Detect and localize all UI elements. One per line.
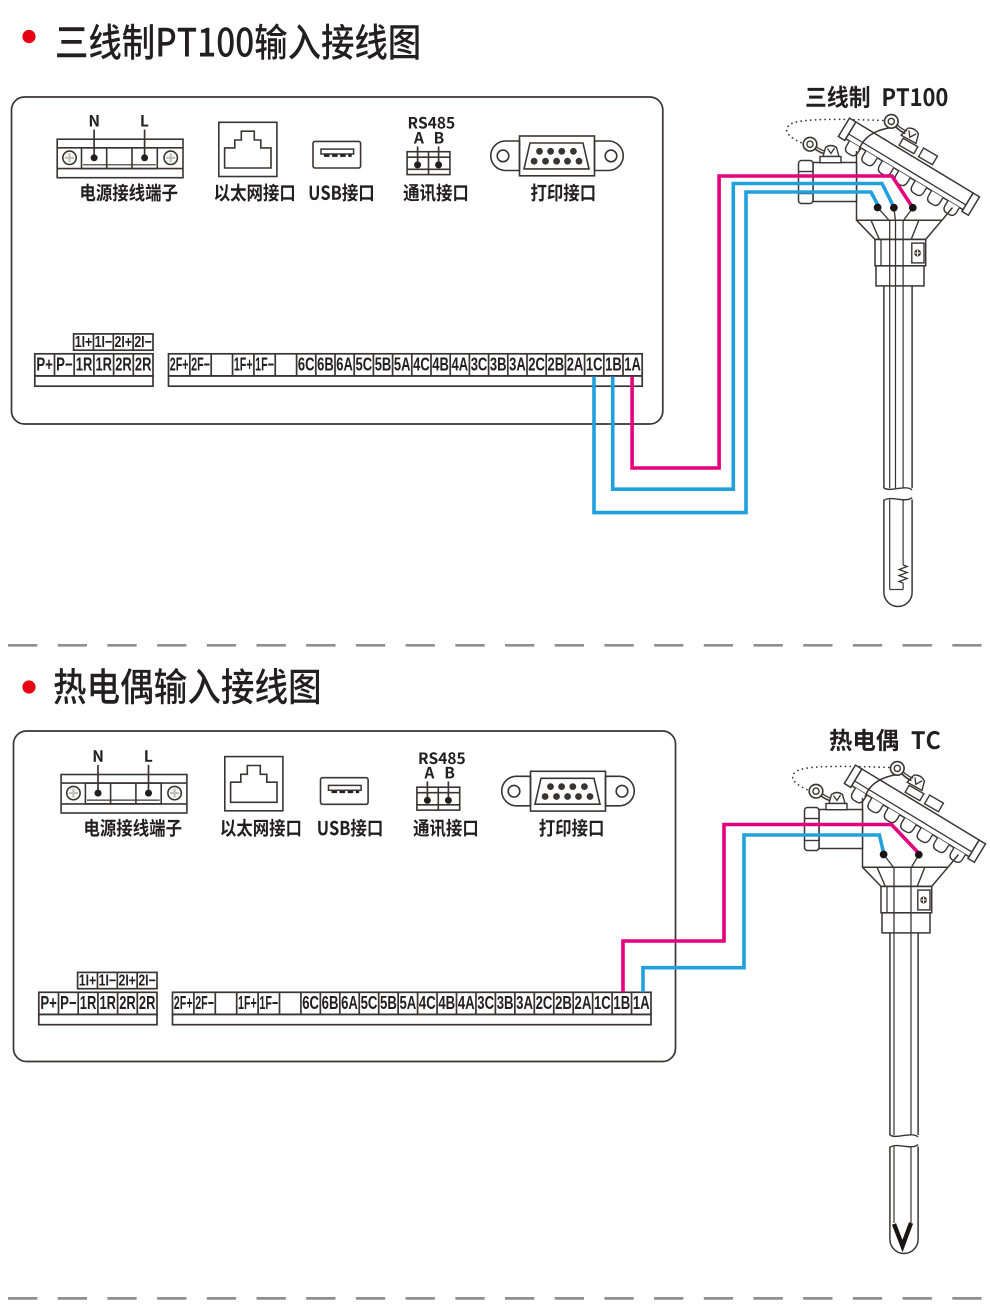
svg-text:4A: 4A	[458, 993, 475, 1013]
svg-text:1I−: 1I−	[95, 334, 113, 351]
svg-text:5A: 5A	[394, 355, 411, 375]
svg-text:2I−: 2I−	[138, 972, 156, 989]
svg-text:6B: 6B	[317, 355, 334, 375]
svg-text:1F−: 1F−	[255, 355, 274, 375]
svg-text:P+: P+	[40, 993, 57, 1013]
svg-text:1F+: 1F+	[238, 993, 257, 1013]
svg-text:1I−: 1I−	[99, 972, 117, 989]
svg-text:3A: 3A	[516, 993, 533, 1013]
svg-text:1C: 1C	[586, 355, 603, 375]
svg-text:1A: 1A	[624, 355, 641, 375]
svg-text:4B: 4B	[438, 993, 455, 1013]
svg-text:2A: 2A	[575, 993, 592, 1013]
svg-text:2C: 2C	[528, 355, 545, 375]
svg-text:2F+: 2F+	[170, 355, 189, 375]
svg-text:3C: 3C	[477, 993, 494, 1013]
svg-text:2R: 2R	[135, 355, 152, 375]
svg-text:1I+: 1I+	[79, 972, 97, 989]
svg-text:4A: 4A	[452, 355, 469, 375]
svg-text:1C: 1C	[594, 993, 611, 1013]
svg-text:3B: 3B	[497, 993, 514, 1013]
svg-text:1R: 1R	[96, 355, 113, 375]
svg-text:3B: 3B	[490, 355, 507, 375]
svg-text:5B: 5B	[380, 993, 397, 1013]
svg-text:1F−: 1F−	[259, 993, 278, 1013]
svg-text:2I+: 2I+	[114, 334, 132, 351]
svg-text:P−: P−	[56, 355, 73, 375]
svg-text:5A: 5A	[399, 993, 416, 1013]
svg-text:3A: 3A	[509, 355, 526, 375]
svg-text:2F−: 2F−	[195, 993, 214, 1013]
svg-text:2I+: 2I+	[118, 972, 136, 989]
svg-text:1A: 1A	[633, 993, 650, 1013]
svg-text:6B: 6B	[322, 993, 339, 1013]
svg-text:1F+: 1F+	[234, 355, 253, 375]
svg-text:3C: 3C	[471, 355, 488, 375]
svg-text:4C: 4C	[419, 993, 436, 1013]
svg-text:6C: 6C	[298, 355, 315, 375]
svg-text:5C: 5C	[361, 993, 378, 1013]
svg-text:2I−: 2I−	[134, 334, 152, 351]
svg-text:4B: 4B	[432, 355, 449, 375]
svg-text:2A: 2A	[567, 355, 584, 375]
svg-text:1B: 1B	[613, 993, 630, 1013]
svg-text:4C: 4C	[413, 355, 430, 375]
svg-text:P−: P−	[60, 993, 77, 1013]
svg-text:1R: 1R	[76, 355, 93, 375]
svg-text:2F+: 2F+	[174, 993, 193, 1013]
svg-text:2R: 2R	[115, 355, 132, 375]
svg-text:6A: 6A	[336, 355, 353, 375]
svg-text:5B: 5B	[375, 355, 392, 375]
svg-text:6A: 6A	[341, 993, 358, 1013]
svg-text:2R: 2R	[119, 993, 136, 1013]
svg-text:1I+: 1I+	[75, 334, 93, 351]
svg-text:2B: 2B	[548, 355, 565, 375]
svg-text:2R: 2R	[139, 993, 156, 1013]
svg-text:1R: 1R	[80, 993, 97, 1013]
svg-text:6C: 6C	[302, 993, 319, 1013]
svg-text:2B: 2B	[555, 993, 572, 1013]
svg-text:5C: 5C	[356, 355, 373, 375]
svg-text:1B: 1B	[605, 355, 622, 375]
svg-text:2F−: 2F−	[191, 355, 210, 375]
svg-text:2C: 2C	[536, 993, 553, 1013]
svg-text:P+: P+	[36, 355, 53, 375]
svg-text:1R: 1R	[100, 993, 117, 1013]
